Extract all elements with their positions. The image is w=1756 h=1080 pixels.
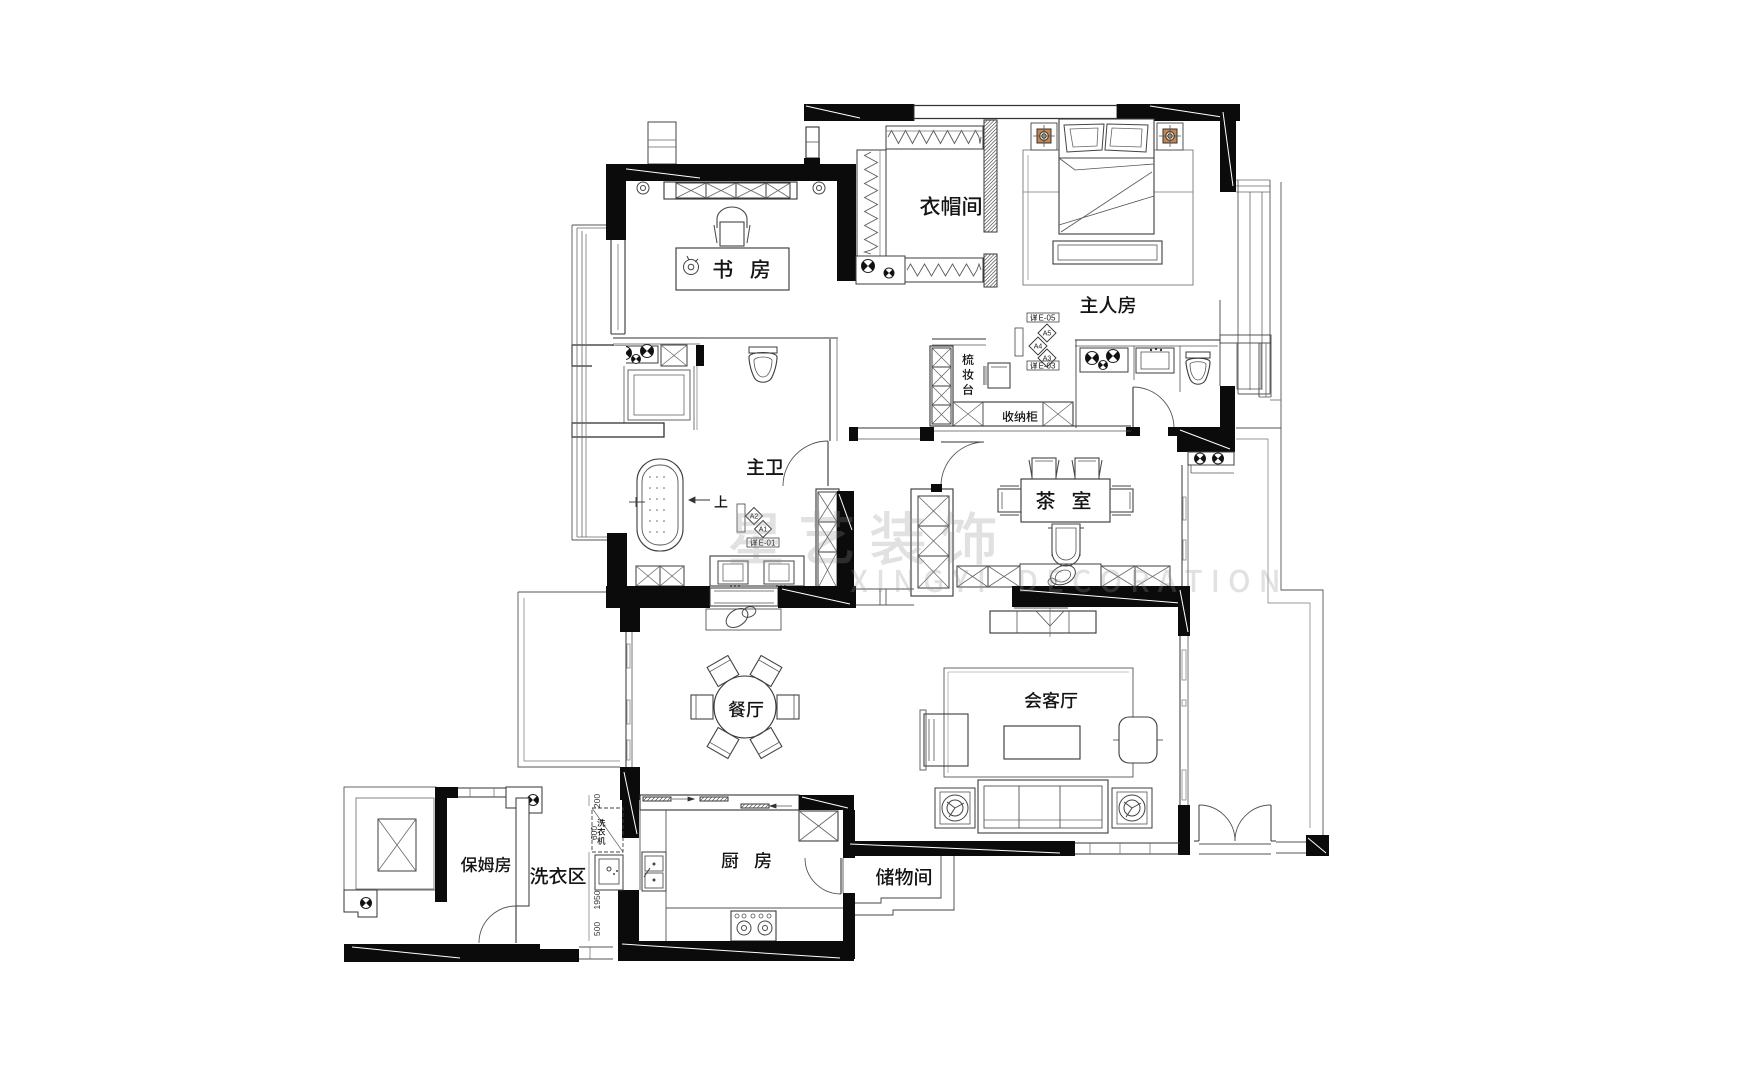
svg-text:200: 200 bbox=[592, 794, 602, 808]
svg-text:500: 500 bbox=[592, 922, 602, 936]
svg-text:A5: A5 bbox=[1043, 331, 1052, 338]
svg-text:600: 600 bbox=[589, 826, 599, 840]
svg-text:A4: A4 bbox=[1034, 344, 1043, 351]
svg-text:1950: 1950 bbox=[592, 890, 602, 909]
svg-text:E-05: E-05 bbox=[1039, 314, 1056, 323]
svg-text:E-03: E-03 bbox=[1039, 362, 1056, 371]
